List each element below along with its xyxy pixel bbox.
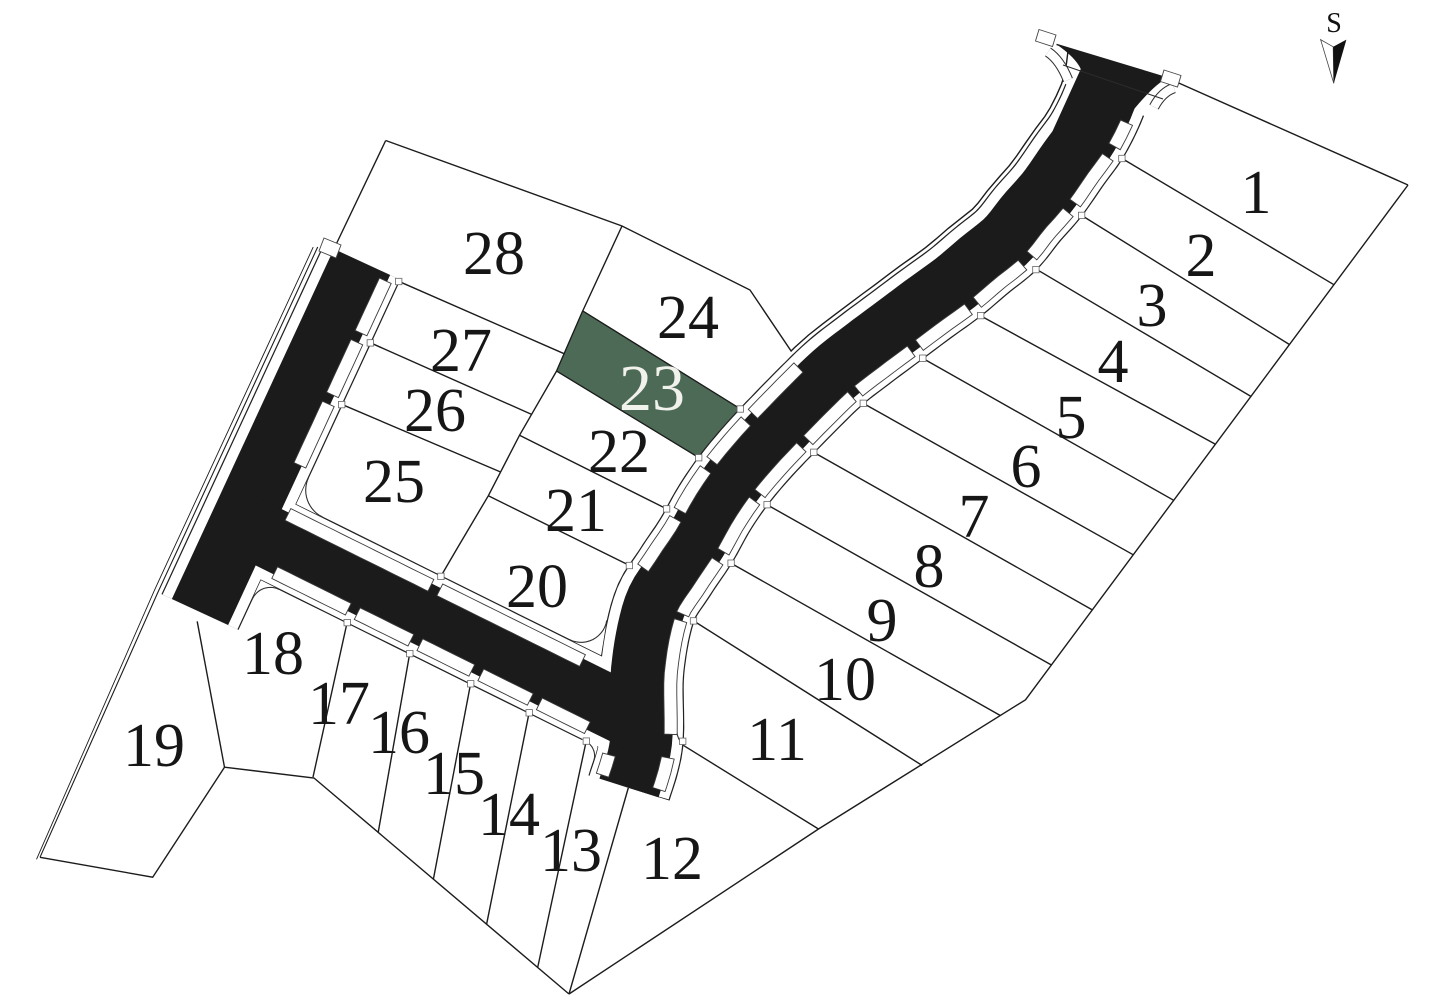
svg-text:20: 20 — [506, 553, 568, 621]
svg-text:21: 21 — [545, 477, 607, 545]
svg-text:1: 1 — [1241, 159, 1272, 227]
svg-text:25: 25 — [363, 448, 425, 516]
svg-text:10: 10 — [814, 646, 876, 714]
svg-text:28: 28 — [463, 220, 525, 288]
svg-text:14: 14 — [478, 781, 540, 849]
svg-text:22: 22 — [588, 418, 650, 486]
svg-text:18: 18 — [242, 620, 304, 688]
svg-text:24: 24 — [657, 284, 719, 352]
svg-text:5: 5 — [1056, 384, 1087, 452]
svg-text:23: 23 — [619, 352, 685, 425]
svg-text:2: 2 — [1186, 222, 1217, 290]
svg-text:S: S — [1326, 8, 1342, 39]
svg-text:16: 16 — [368, 699, 430, 767]
svg-text:12: 12 — [641, 825, 703, 893]
svg-text:11: 11 — [747, 706, 807, 774]
svg-text:7: 7 — [959, 483, 990, 551]
svg-text:13: 13 — [540, 817, 602, 885]
svg-text:8: 8 — [914, 533, 945, 601]
svg-text:19: 19 — [123, 712, 185, 780]
svg-text:4: 4 — [1098, 328, 1129, 396]
svg-text:26: 26 — [404, 377, 466, 445]
svg-text:6: 6 — [1011, 433, 1042, 501]
svg-text:9: 9 — [867, 587, 898, 655]
svg-text:15: 15 — [423, 740, 485, 808]
svg-text:17: 17 — [308, 670, 370, 738]
svg-text:3: 3 — [1137, 272, 1168, 340]
svg-text:27: 27 — [430, 317, 492, 385]
